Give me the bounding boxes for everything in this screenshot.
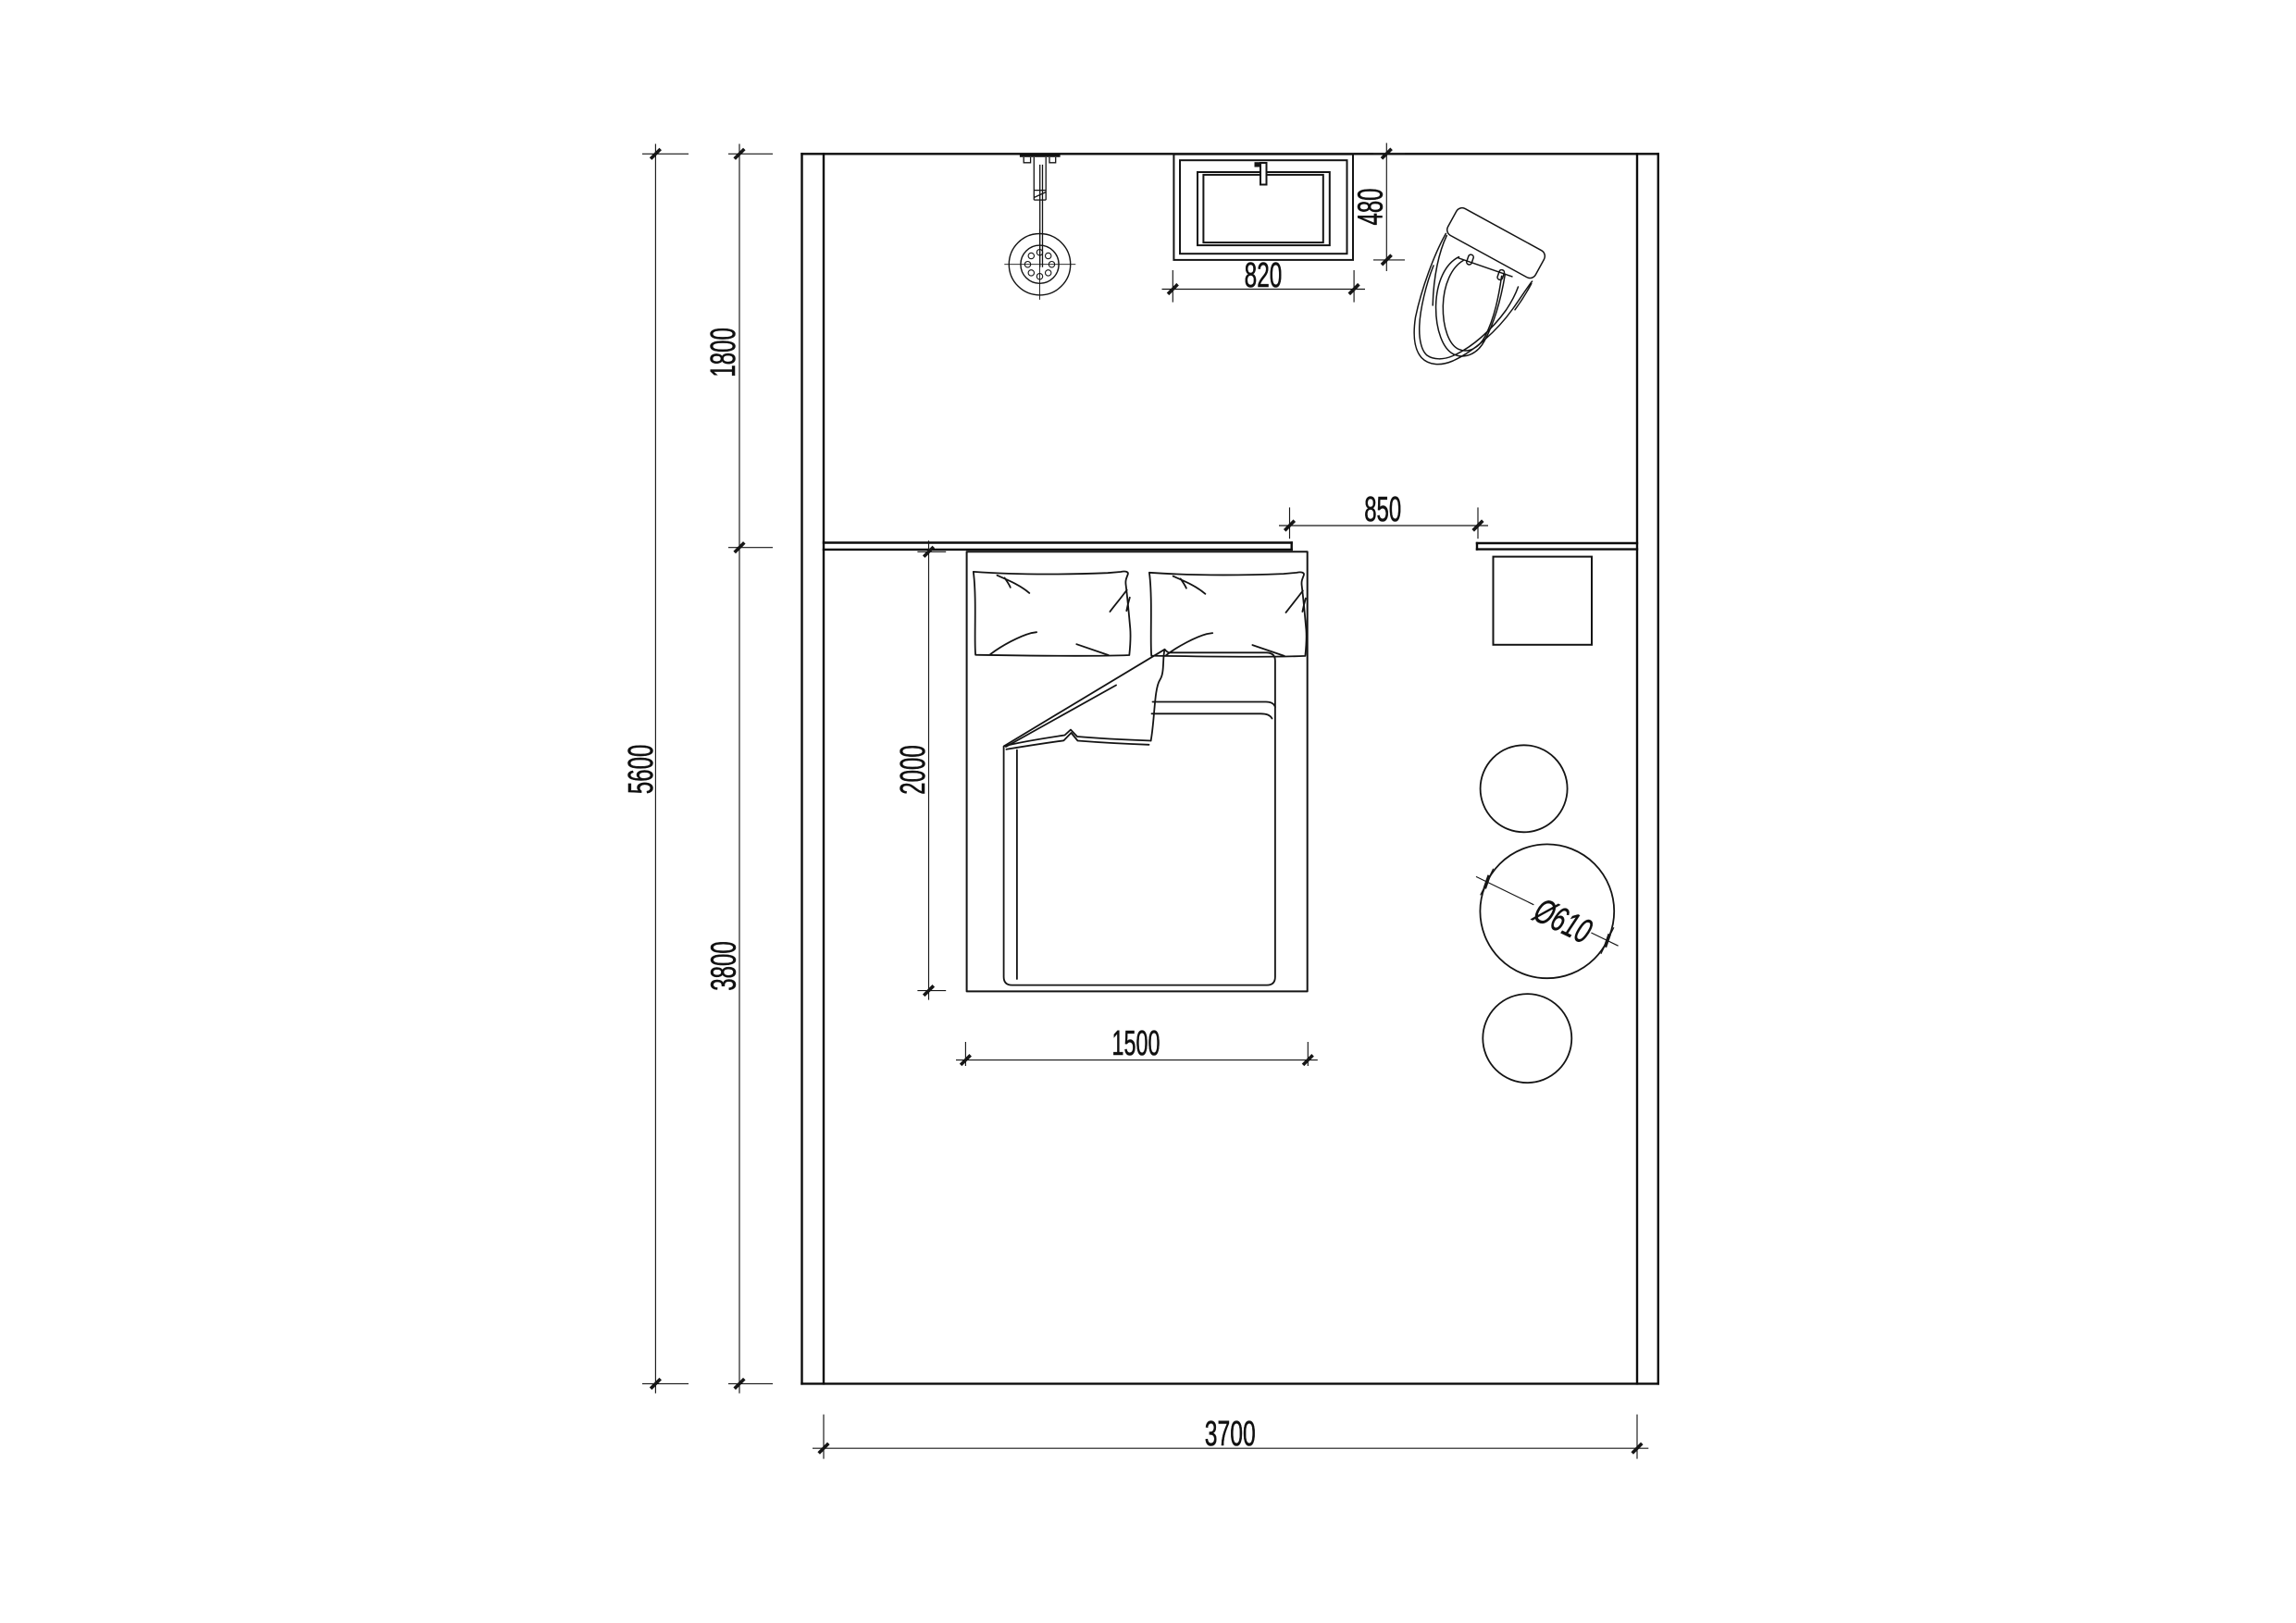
svg-text:1800: 1800: [704, 328, 743, 377]
svg-text:850: 850: [1364, 490, 1401, 529]
svg-text:820: 820: [1245, 256, 1283, 295]
svg-text:Ø610: Ø610: [1527, 891, 1597, 952]
svg-text:3700: 3700: [1205, 1415, 1256, 1454]
svg-text:480: 480: [1352, 189, 1391, 226]
svg-text:1500: 1500: [1112, 1024, 1160, 1063]
svg-text:3800: 3800: [705, 941, 744, 990]
svg-text:5600: 5600: [622, 745, 661, 794]
svg-text:2000: 2000: [894, 745, 933, 794]
